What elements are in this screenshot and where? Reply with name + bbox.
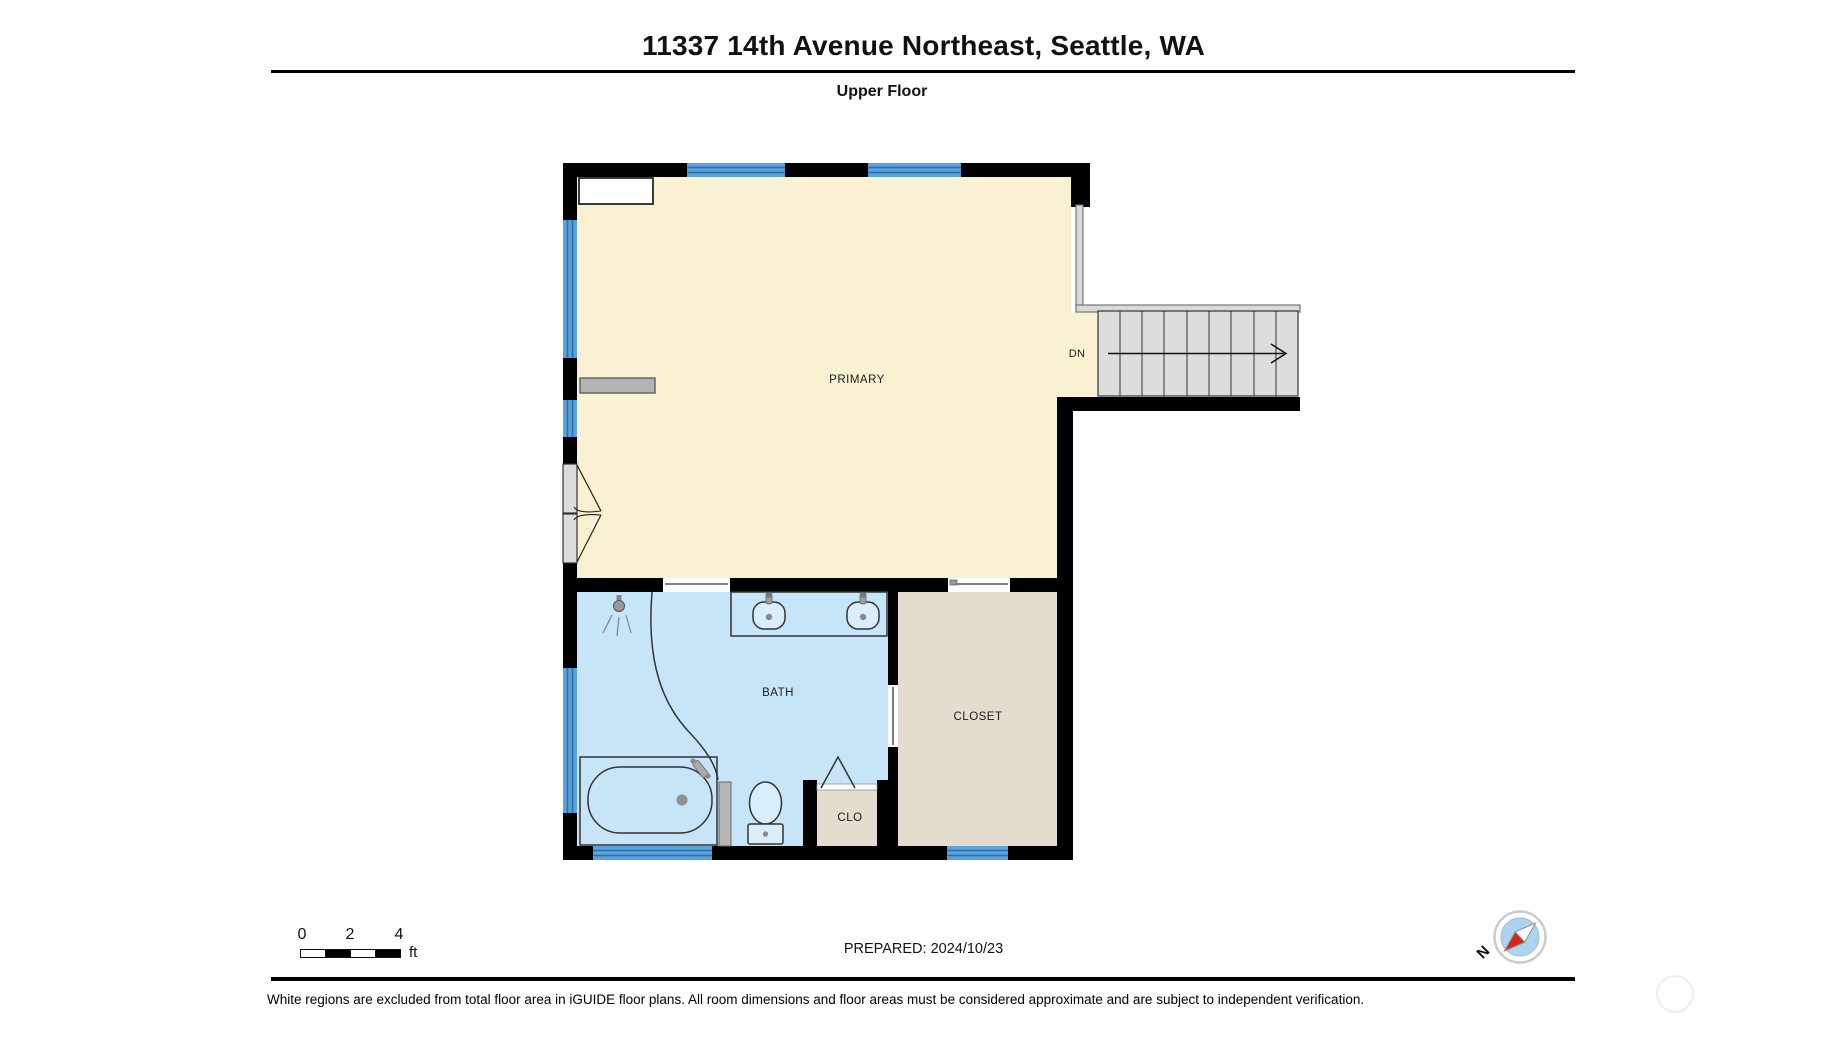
room-label-closet: CLOSET (953, 711, 1002, 723)
floor-plan-page: 11337 14th Avenue Northeast, Seattle, WA… (0, 0, 1847, 1039)
stairs-down-label: DN (1069, 348, 1086, 360)
room-label-bath: BATH (762, 687, 794, 699)
staircase (1098, 311, 1298, 396)
window-bottom-2 (947, 846, 1008, 860)
window-top-1 (687, 163, 785, 177)
pocket-door-bath-closet (888, 685, 898, 747)
shelf (580, 378, 655, 393)
room-label-clo: CLO (837, 812, 862, 824)
toilet-icon (748, 782, 783, 844)
footer-divider (271, 977, 1575, 981)
page-title: 11337 14th Avenue Northeast, Seattle, WA (0, 30, 1847, 62)
disclaimer-text: White regions are excluded from total fl… (267, 992, 1364, 1007)
header-divider (271, 70, 1575, 73)
window-bottom-1 (593, 846, 712, 860)
room-fills (577, 177, 1098, 846)
partition-stub (719, 782, 731, 846)
watermark-circle (1656, 975, 1694, 1013)
window-left-2 (563, 400, 577, 437)
prepared-date: PREPARED: 2024/10/23 (0, 941, 1847, 957)
floor-plan-drawing (540, 140, 1320, 900)
window-left-bath (563, 668, 577, 813)
stair-railing (1076, 205, 1300, 312)
compass-icon (1488, 906, 1552, 970)
window-left-1 (563, 220, 577, 358)
sliding-door-bath (663, 578, 730, 592)
excluded-region (579, 178, 653, 204)
floor-label: Upper Floor (837, 83, 928, 101)
room-label-primary: PRIMARY (829, 374, 885, 386)
sliding-door-closet (948, 578, 1010, 592)
window-top-2 (868, 163, 961, 177)
